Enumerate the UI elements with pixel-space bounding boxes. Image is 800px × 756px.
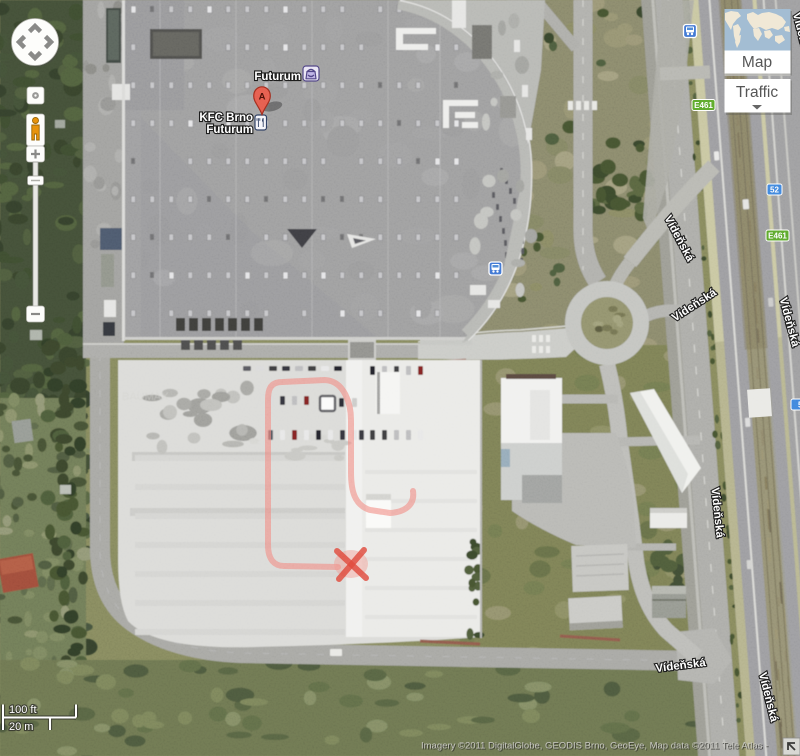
svg-text:Imagery ©2011 DigitalGlobe, GE: Imagery ©2011 DigitalGlobe, GEODIS Brno,… bbox=[421, 741, 768, 752]
svg-text:Traffic: Traffic bbox=[736, 84, 778, 101]
svg-text:20 m: 20 m bbox=[9, 721, 33, 733]
svg-text:Map: Map bbox=[742, 54, 772, 71]
svg-text:100 ft: 100 ft bbox=[9, 704, 37, 716]
